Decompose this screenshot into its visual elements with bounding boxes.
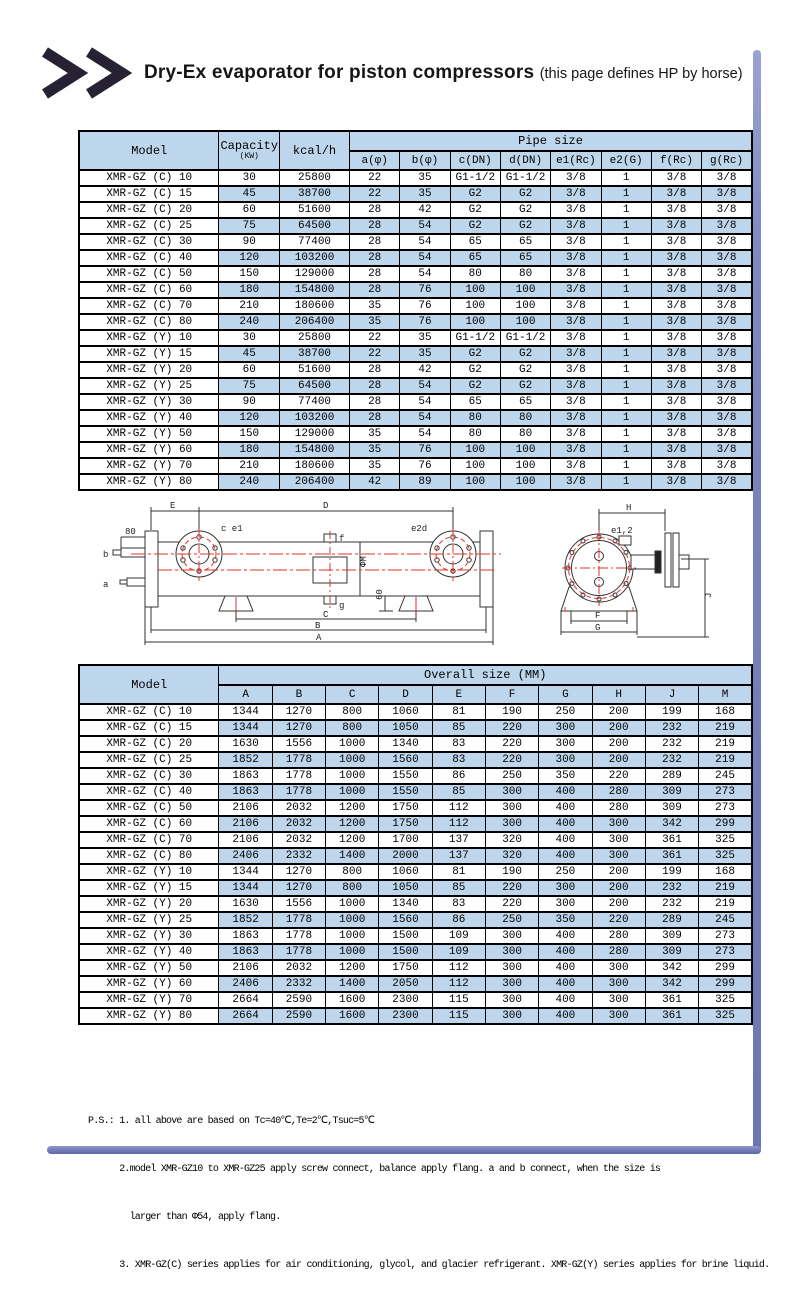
value-cell: 3/8: [551, 314, 601, 330]
value-cell: 100: [500, 298, 550, 314]
value-cell: 76: [400, 314, 450, 330]
value-cell: 361: [645, 992, 698, 1008]
value-cell: G2: [450, 202, 500, 218]
value-cell: 3/8: [702, 346, 752, 362]
value-cell: 1050: [379, 880, 432, 896]
value-cell: 3/8: [651, 314, 701, 330]
table-row: XMR-GZ (C) 40120103200285465653/813/83/8: [79, 250, 752, 266]
value-cell: 1: [601, 266, 651, 282]
value-cell: 3/8: [702, 170, 752, 186]
value-cell: 1863: [219, 768, 272, 784]
value-cell: 273: [699, 928, 752, 944]
value-cell: 220: [592, 912, 645, 928]
value-cell: 1270: [272, 864, 325, 880]
value-cell: 2590: [272, 1008, 325, 1024]
value-cell: 3/8: [651, 330, 701, 346]
value-cell: 54: [400, 234, 450, 250]
value-cell: 100: [500, 442, 550, 458]
value-cell: 100: [450, 442, 500, 458]
value-cell: 220: [592, 768, 645, 784]
column-header: e2(G): [601, 151, 651, 170]
value-cell: 1863: [219, 928, 272, 944]
model-cell: XMR-GZ (Y) 60: [79, 976, 219, 992]
value-cell: 60: [219, 362, 280, 378]
value-cell: 309: [645, 784, 698, 800]
table-row: XMR-GZ (C) 10134412708001060811902502001…: [79, 704, 752, 720]
column-header: J: [645, 685, 698, 704]
value-cell: 100: [450, 298, 500, 314]
value-cell: 3/8: [702, 218, 752, 234]
value-cell: 206400: [280, 314, 350, 330]
value-cell: 86: [432, 912, 485, 928]
pipe-size-table: Model Capacity (KW) kcal/h Pipe size a(φ…: [78, 130, 753, 491]
value-cell: 3/8: [551, 474, 601, 490]
value-cell: 54: [400, 426, 450, 442]
value-cell: 65: [500, 250, 550, 266]
table-row: XMR-GZ (Y) 30186317781000150010930040028…: [79, 928, 752, 944]
value-cell: 100: [450, 282, 500, 298]
value-cell: 3/8: [651, 346, 701, 362]
table-row: XMR-GZ (C) 1545387002235G2G23/813/83/8: [79, 186, 752, 202]
kcal-column-header: kcal/h: [280, 131, 350, 170]
column-header: a(φ): [350, 151, 400, 170]
value-cell: 2106: [219, 960, 272, 976]
value-cell: 300: [592, 960, 645, 976]
value-cell: 38700: [280, 346, 350, 362]
model-cell: XMR-GZ (C) 70: [79, 832, 219, 848]
value-cell: 361: [645, 848, 698, 864]
value-cell: 1000: [326, 736, 379, 752]
column-header: b(φ): [400, 151, 450, 170]
value-cell: 3/8: [551, 330, 601, 346]
value-cell: 35: [400, 346, 450, 362]
value-cell: 1000: [326, 896, 379, 912]
value-cell: 309: [645, 928, 698, 944]
value-cell: 1400: [326, 976, 379, 992]
value-cell: 28: [350, 218, 400, 234]
table-row: XMR-GZ (C) 15134412708001050852203002002…: [79, 720, 752, 736]
value-cell: 2106: [219, 816, 272, 832]
column-header: c(DN): [450, 151, 500, 170]
value-cell: 75: [219, 218, 280, 234]
model-cell: XMR-GZ (Y) 15: [79, 880, 219, 896]
value-cell: 300: [592, 832, 645, 848]
value-cell: 250: [485, 912, 538, 928]
dim-label-e: E: [170, 501, 175, 511]
value-cell: 3/8: [702, 186, 752, 202]
value-cell: 22: [350, 346, 400, 362]
value-cell: 3/8: [551, 362, 601, 378]
value-cell: 1: [601, 394, 651, 410]
value-cell: 3/8: [651, 410, 701, 426]
value-cell: 129000: [280, 266, 350, 282]
value-cell: 300: [485, 1008, 538, 1024]
value-cell: 199: [645, 704, 698, 720]
value-cell: 1: [601, 458, 651, 474]
table-row: XMR-GZ (C) 25185217781000156083220300200…: [79, 752, 752, 768]
value-cell: 100: [450, 314, 500, 330]
value-cell: 400: [539, 848, 592, 864]
value-cell: 1340: [379, 736, 432, 752]
value-cell: 220: [485, 880, 538, 896]
value-cell: 30: [219, 330, 280, 346]
nozzle-label-e2d: e2d: [411, 524, 427, 534]
value-cell: 86: [432, 768, 485, 784]
dim-label-phi-m: ΦM: [359, 556, 369, 567]
value-cell: 3/8: [651, 298, 701, 314]
model-cell: XMR-GZ (Y) 40: [79, 944, 219, 960]
value-cell: 28: [350, 378, 400, 394]
table-row: XMR-GZ (Y) 80266425901600230011530040030…: [79, 1008, 752, 1024]
value-cell: 1200: [326, 816, 379, 832]
table-row: XMR-GZ (Y) 40120103200285480803/813/83/8: [79, 410, 752, 426]
table-row: XMR-GZ (Y) 6018015480035761001003/813/83…: [79, 442, 752, 458]
value-cell: 220: [485, 752, 538, 768]
value-cell: 232: [645, 752, 698, 768]
value-cell: G2: [450, 362, 500, 378]
value-cell: 1: [601, 234, 651, 250]
value-cell: G2: [450, 378, 500, 394]
value-cell: 89: [400, 474, 450, 490]
model-cell: XMR-GZ (C) 40: [79, 250, 219, 266]
value-cell: 232: [645, 736, 698, 752]
value-cell: 112: [432, 960, 485, 976]
dim-label-b2: B: [315, 621, 321, 631]
value-cell: 3/8: [551, 186, 601, 202]
nozzle-label-ce1: c e1: [221, 524, 243, 534]
value-cell: 1270: [272, 704, 325, 720]
value-cell: 200: [592, 704, 645, 720]
value-cell: 85: [432, 784, 485, 800]
model-cell: XMR-GZ (C) 50: [79, 800, 219, 816]
value-cell: 112: [432, 816, 485, 832]
value-cell: 54: [400, 218, 450, 234]
value-cell: 3/8: [551, 234, 601, 250]
model-cell: XMR-GZ (Y) 40: [79, 410, 219, 426]
value-cell: 100: [500, 282, 550, 298]
value-cell: 2406: [219, 976, 272, 992]
value-cell: 1630: [219, 736, 272, 752]
value-cell: G2: [500, 202, 550, 218]
value-cell: 30: [219, 170, 280, 186]
value-cell: 3/8: [551, 266, 601, 282]
value-cell: 300: [592, 1008, 645, 1024]
value-cell: 90: [219, 234, 280, 250]
value-cell: 83: [432, 752, 485, 768]
value-cell: 400: [539, 784, 592, 800]
value-cell: 200: [592, 720, 645, 736]
value-cell: 100: [500, 474, 550, 490]
value-cell: 3/8: [651, 362, 701, 378]
value-cell: 2032: [272, 800, 325, 816]
table-row: XMR-GZ (Y) 1030258002235G1-1/2G1-1/23/81…: [79, 330, 752, 346]
value-cell: 137: [432, 848, 485, 864]
value-cell: 3/8: [551, 346, 601, 362]
value-cell: 80: [450, 426, 500, 442]
value-cell: 51600: [280, 202, 350, 218]
value-cell: 320: [485, 848, 538, 864]
model-cell: XMR-GZ (C) 80: [79, 314, 219, 330]
value-cell: 3/8: [702, 330, 752, 346]
value-cell: 250: [539, 864, 592, 880]
value-cell: 232: [645, 720, 698, 736]
value-cell: 45: [219, 186, 280, 202]
value-cell: 1: [601, 186, 651, 202]
table-row: XMR-GZ (C) 309077400285465653/813/83/8: [79, 234, 752, 250]
value-cell: 3/8: [702, 442, 752, 458]
value-cell: 1560: [379, 752, 432, 768]
value-cell: 210: [219, 458, 280, 474]
model-cell: XMR-GZ (C) 30: [79, 234, 219, 250]
value-cell: 54: [400, 250, 450, 266]
table-row: XMR-GZ (C) 30186317781000155086250350220…: [79, 768, 752, 784]
value-cell: 219: [699, 736, 752, 752]
value-cell: 3/8: [702, 362, 752, 378]
value-cell: 3/8: [702, 474, 752, 490]
value-cell: 28: [350, 282, 400, 298]
value-cell: 400: [539, 928, 592, 944]
model-cell: XMR-GZ (C) 15: [79, 720, 219, 736]
value-cell: 65: [500, 234, 550, 250]
value-cell: 1778: [272, 944, 325, 960]
value-cell: 3/8: [702, 250, 752, 266]
note-line-3: larger than Φ54, apply flang.: [88, 1210, 769, 1226]
value-cell: 299: [699, 976, 752, 992]
value-cell: 1556: [272, 896, 325, 912]
value-cell: 3/8: [651, 218, 701, 234]
model-cell: XMR-GZ (Y) 50: [79, 960, 219, 976]
table-row: XMR-GZ (C) 7021018060035761001003/813/83…: [79, 298, 752, 314]
table-row: XMR-GZ (Y) 2060516002842G2G23/813/83/8: [79, 362, 752, 378]
table-row: XMR-GZ (C) 50210620321200175011230040028…: [79, 800, 752, 816]
value-cell: 273: [699, 800, 752, 816]
table-row: XMR-GZ (Y) 50210620321200175011230040030…: [79, 960, 752, 976]
value-cell: 25800: [280, 170, 350, 186]
side-view: [113, 507, 493, 645]
value-cell: 64500: [280, 378, 350, 394]
table-row: XMR-GZ (C) 8024020640035761001003/813/83…: [79, 314, 752, 330]
dim-label-f2: F: [595, 611, 600, 621]
value-cell: 220: [485, 896, 538, 912]
value-cell: 190: [485, 864, 538, 880]
value-cell: 280: [592, 944, 645, 960]
value-cell: 3/8: [651, 234, 701, 250]
value-cell: 2332: [272, 848, 325, 864]
value-cell: 100: [450, 474, 500, 490]
value-cell: 3/8: [651, 426, 701, 442]
value-cell: 3/8: [651, 378, 701, 394]
column-header: g(Rc): [702, 151, 752, 170]
value-cell: 300: [485, 992, 538, 1008]
value-cell: 2032: [272, 816, 325, 832]
value-cell: 42: [400, 362, 450, 378]
value-cell: 3/8: [651, 266, 701, 282]
value-cell: 54: [400, 394, 450, 410]
value-cell: 100: [500, 458, 550, 474]
value-cell: 309: [645, 800, 698, 816]
value-cell: 35: [350, 298, 400, 314]
value-cell: 76: [400, 298, 450, 314]
value-cell: 3/8: [702, 378, 752, 394]
value-cell: 83: [432, 896, 485, 912]
value-cell: 54: [400, 378, 450, 394]
model-cell: XMR-GZ (Y) 50: [79, 426, 219, 442]
column-header: d(DN): [500, 151, 550, 170]
value-cell: 342: [645, 816, 698, 832]
value-cell: 280: [592, 800, 645, 816]
model-column-header: Model: [79, 131, 219, 170]
column-header: M: [699, 685, 752, 704]
value-cell: 2332: [272, 976, 325, 992]
value-cell: 300: [485, 976, 538, 992]
value-cell: 3/8: [551, 298, 601, 314]
value-cell: 76: [400, 442, 450, 458]
value-cell: 38700: [280, 186, 350, 202]
dim-label-80: 80: [125, 527, 136, 537]
model-cell: XMR-GZ (Y) 25: [79, 378, 219, 394]
value-cell: 103200: [280, 410, 350, 426]
value-cell: 112: [432, 800, 485, 816]
value-cell: 300: [592, 992, 645, 1008]
value-cell: G1-1/2: [500, 330, 550, 346]
table-row: XMR-GZ (Y) 70266425901600230011530040030…: [79, 992, 752, 1008]
value-cell: 300: [485, 816, 538, 832]
value-cell: 400: [539, 992, 592, 1008]
value-cell: 1060: [379, 704, 432, 720]
value-cell: 300: [485, 784, 538, 800]
value-cell: 1556: [272, 736, 325, 752]
value-cell: 220: [485, 736, 538, 752]
title-text: Dry-Ex evaporator for piston compressors: [144, 62, 540, 83]
value-cell: 22: [350, 186, 400, 202]
value-cell: 1344: [219, 720, 272, 736]
value-cell: 219: [699, 880, 752, 896]
value-cell: 129000: [280, 426, 350, 442]
value-cell: 350: [539, 912, 592, 928]
value-cell: 3/8: [651, 250, 701, 266]
value-cell: 65: [500, 394, 550, 410]
value-cell: 300: [539, 880, 592, 896]
value-cell: 1344: [219, 864, 272, 880]
value-cell: G2: [500, 186, 550, 202]
value-cell: 25800: [280, 330, 350, 346]
value-cell: 1270: [272, 880, 325, 896]
value-cell: 3/8: [551, 458, 601, 474]
value-cell: 168: [699, 704, 752, 720]
value-cell: 81: [432, 704, 485, 720]
dim-label-j: J: [704, 593, 714, 598]
double-chevron-icon: [38, 46, 134, 100]
value-cell: 77400: [280, 234, 350, 250]
table-row: XMR-GZ (C) 80240623321400200013732040030…: [79, 848, 752, 864]
value-cell: 1340: [379, 896, 432, 912]
table-row: XMR-GZ (Y) 50150129000355480803/813/83/8: [79, 426, 752, 442]
table-row: XMR-GZ (Y) 309077400285465653/813/83/8: [79, 394, 752, 410]
value-cell: 83: [432, 736, 485, 752]
value-cell: 3/8: [702, 282, 752, 298]
column-header: B: [272, 685, 325, 704]
value-cell: 85: [432, 880, 485, 896]
value-cell: 3/8: [702, 314, 752, 330]
value-cell: 1270: [272, 720, 325, 736]
value-cell: 2664: [219, 1008, 272, 1024]
value-cell: 3/8: [702, 266, 752, 282]
value-cell: 1: [601, 410, 651, 426]
model-cell: XMR-GZ (Y) 20: [79, 362, 219, 378]
value-cell: 200: [592, 752, 645, 768]
model-cell: XMR-GZ (C) 25: [79, 218, 219, 234]
value-cell: 45: [219, 346, 280, 362]
value-cell: 60: [219, 202, 280, 218]
value-cell: 2664: [219, 992, 272, 1008]
value-cell: G2: [450, 346, 500, 362]
value-cell: 64500: [280, 218, 350, 234]
value-cell: 3/8: [551, 218, 601, 234]
value-cell: 1000: [326, 912, 379, 928]
value-cell: 232: [645, 896, 698, 912]
nozzle-label-a: a: [103, 580, 109, 590]
value-cell: 154800: [280, 282, 350, 298]
value-cell: 232: [645, 880, 698, 896]
table-row: XMR-GZ (Y) 8024020640042891001003/813/83…: [79, 474, 752, 490]
column-header: C: [326, 685, 379, 704]
table-row: XMR-GZ (Y) 7021018060035761001003/813/83…: [79, 458, 752, 474]
value-cell: 1: [601, 170, 651, 186]
model-cell: XMR-GZ (C) 10: [79, 704, 219, 720]
value-cell: 280: [592, 784, 645, 800]
value-cell: 240: [219, 314, 280, 330]
table-row: XMR-GZ (Y) 40186317781000150010930040028…: [79, 944, 752, 960]
page-header: Dry-Ex evaporator for piston compressors…: [38, 46, 743, 100]
value-cell: 65: [450, 250, 500, 266]
value-cell: 1: [601, 250, 651, 266]
value-cell: 3/8: [551, 170, 601, 186]
model-cell: XMR-GZ (Y) 20: [79, 896, 219, 912]
value-cell: 1: [601, 218, 651, 234]
value-cell: 1000: [326, 752, 379, 768]
value-cell: 112: [432, 976, 485, 992]
model-cell: XMR-GZ (C) 80: [79, 848, 219, 864]
value-cell: 299: [699, 960, 752, 976]
value-cell: 3/8: [651, 170, 701, 186]
value-cell: 400: [539, 960, 592, 976]
value-cell: 3/8: [702, 410, 752, 426]
value-cell: 80: [450, 410, 500, 426]
value-cell: 2050: [379, 976, 432, 992]
value-cell: 1: [601, 314, 651, 330]
technical-drawing: E D 80 b a c e1 f e2d g ΦM 60 C B A H e1…: [75, 497, 755, 662]
table-row: XMR-GZ (Y) 25185217781000156086250350220…: [79, 912, 752, 928]
value-cell: 28: [350, 266, 400, 282]
value-cell: 1400: [326, 848, 379, 864]
value-cell: 289: [645, 912, 698, 928]
model-cell: XMR-GZ (Y) 60: [79, 442, 219, 458]
value-cell: 325: [699, 1008, 752, 1024]
value-cell: 190: [485, 704, 538, 720]
value-cell: 2032: [272, 960, 325, 976]
value-cell: 3/8: [702, 394, 752, 410]
model-cell: XMR-GZ (Y) 10: [79, 864, 219, 880]
value-cell: 1000: [326, 944, 379, 960]
value-cell: 3/8: [551, 426, 601, 442]
model-cell: XMR-GZ (C) 25: [79, 752, 219, 768]
value-cell: 35: [400, 170, 450, 186]
value-cell: 35: [350, 314, 400, 330]
value-cell: 199: [645, 864, 698, 880]
value-cell: 65: [450, 234, 500, 250]
column-header: E: [432, 685, 485, 704]
table-row: XMR-GZ (Y) 10134412708001060811902502001…: [79, 864, 752, 880]
